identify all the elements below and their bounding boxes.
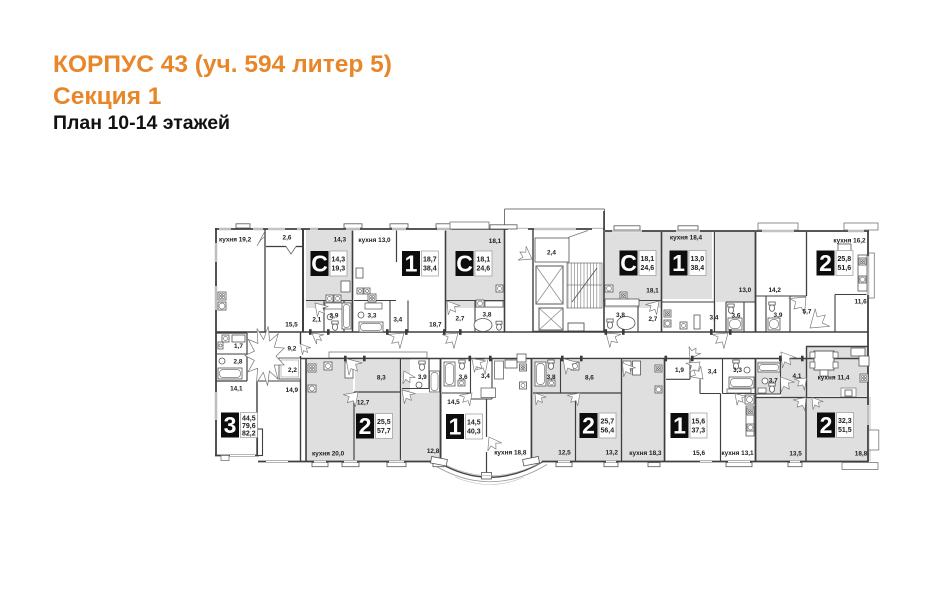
svg-text:1: 1 bbox=[672, 250, 685, 276]
svg-text:3,8: 3,8 bbox=[547, 374, 556, 381]
svg-text:Секция 1: Секция 1 bbox=[53, 83, 161, 110]
svg-text:13,0: 13,0 bbox=[739, 287, 752, 294]
svg-text:38,4: 38,4 bbox=[423, 266, 437, 273]
svg-text:С: С bbox=[456, 251, 473, 277]
svg-text:кухня 13,0: кухня 13,0 bbox=[358, 237, 391, 244]
svg-text:24,6: 24,6 bbox=[641, 265, 655, 272]
svg-text:5,7: 5,7 bbox=[803, 309, 812, 316]
svg-text:14,5: 14,5 bbox=[467, 420, 481, 427]
svg-text:18,8: 18,8 bbox=[855, 451, 868, 458]
svg-text:25,5: 25,5 bbox=[377, 419, 391, 426]
svg-text:15,5: 15,5 bbox=[285, 322, 298, 329]
svg-text:кухня 18,8: кухня 18,8 bbox=[494, 449, 527, 456]
svg-text:1: 1 bbox=[449, 414, 462, 440]
svg-text:8,6: 8,6 bbox=[585, 374, 594, 381]
svg-text:3,9: 3,9 bbox=[774, 312, 783, 319]
svg-text:2,6: 2,6 bbox=[283, 235, 292, 242]
svg-text:51,6: 51,6 bbox=[838, 265, 852, 272]
svg-text:3,7: 3,7 bbox=[769, 377, 778, 384]
svg-text:57,7: 57,7 bbox=[377, 428, 391, 435]
svg-text:18,7: 18,7 bbox=[423, 257, 437, 264]
svg-text:56,4: 56,4 bbox=[601, 428, 615, 435]
svg-text:12,8: 12,8 bbox=[427, 448, 440, 455]
svg-text:3: 3 bbox=[224, 412, 237, 438]
svg-text:2,7: 2,7 bbox=[648, 316, 657, 323]
svg-text:3,6: 3,6 bbox=[732, 313, 741, 320]
svg-text:С: С bbox=[620, 250, 637, 276]
svg-text:2,2: 2,2 bbox=[288, 367, 297, 374]
svg-text:14,1: 14,1 bbox=[230, 386, 243, 393]
svg-text:3,4: 3,4 bbox=[393, 317, 402, 324]
svg-text:4,1: 4,1 bbox=[793, 373, 802, 380]
svg-text:14,3: 14,3 bbox=[334, 237, 347, 244]
svg-text:2,9: 2,9 bbox=[330, 313, 339, 320]
svg-text:1: 1 bbox=[673, 413, 686, 439]
svg-text:13,0: 13,0 bbox=[691, 256, 705, 263]
svg-text:38,4: 38,4 bbox=[691, 265, 705, 272]
svg-text:кухня 18,4: кухня 18,4 bbox=[670, 235, 703, 242]
svg-text:19,3: 19,3 bbox=[332, 266, 346, 273]
svg-text:1,7: 1,7 bbox=[234, 343, 243, 350]
svg-text:18,1: 18,1 bbox=[646, 288, 659, 295]
svg-text:13,5: 13,5 bbox=[789, 451, 802, 458]
svg-text:82,2: 82,2 bbox=[242, 431, 256, 438]
svg-text:12,5: 12,5 bbox=[558, 449, 571, 456]
svg-text:15,6: 15,6 bbox=[692, 419, 706, 426]
svg-text:79,6: 79,6 bbox=[242, 423, 256, 430]
svg-text:2: 2 bbox=[820, 412, 833, 438]
svg-text:9,2: 9,2 bbox=[287, 346, 296, 353]
svg-text:32,3: 32,3 bbox=[838, 418, 852, 425]
svg-text:2,4: 2,4 bbox=[547, 250, 556, 257]
svg-text:8,3: 8,3 bbox=[377, 374, 386, 381]
svg-text:кухня 19,2: кухня 19,2 bbox=[219, 237, 252, 244]
svg-text:11,6: 11,6 bbox=[855, 298, 868, 305]
svg-text:12,7: 12,7 bbox=[357, 399, 370, 406]
svg-text:13,2: 13,2 bbox=[605, 449, 618, 456]
svg-text:КОРПУС 43 (уч. 594 литер 5): КОРПУС 43 (уч. 594 литер 5) bbox=[53, 51, 392, 78]
svg-text:18,1: 18,1 bbox=[477, 257, 491, 264]
svg-text:14,5: 14,5 bbox=[447, 399, 460, 406]
svg-text:3,8: 3,8 bbox=[616, 312, 625, 319]
svg-text:2: 2 bbox=[819, 250, 832, 276]
svg-text:3,4: 3,4 bbox=[710, 314, 719, 321]
svg-text:25,7: 25,7 bbox=[601, 419, 615, 426]
svg-text:40,3: 40,3 bbox=[467, 429, 481, 436]
svg-text:кухня 13,1: кухня 13,1 bbox=[721, 450, 754, 457]
svg-text:2: 2 bbox=[359, 413, 372, 439]
svg-text:кухня 16,2: кухня 16,2 bbox=[833, 238, 866, 245]
svg-text:15,6: 15,6 bbox=[693, 450, 706, 457]
svg-text:18,1: 18,1 bbox=[489, 238, 502, 245]
svg-text:3,3: 3,3 bbox=[733, 367, 742, 374]
svg-text:44,5: 44,5 bbox=[242, 416, 256, 423]
svg-text:кухня 18,3: кухня 18,3 bbox=[629, 450, 662, 457]
svg-text:кухня 20,0: кухня 20,0 bbox=[312, 451, 345, 458]
svg-text:3,6: 3,6 bbox=[459, 374, 468, 381]
svg-text:С: С bbox=[311, 251, 328, 277]
svg-text:2,8: 2,8 bbox=[234, 359, 243, 366]
svg-text:14,2: 14,2 bbox=[768, 287, 781, 294]
svg-text:3,8: 3,8 bbox=[483, 312, 492, 319]
svg-text:2,1: 2,1 bbox=[312, 317, 321, 324]
svg-text:14,3: 14,3 bbox=[332, 257, 346, 264]
svg-text:24,6: 24,6 bbox=[477, 266, 491, 273]
svg-text:18,7: 18,7 bbox=[429, 322, 442, 329]
svg-text:3,3: 3,3 bbox=[368, 313, 377, 320]
svg-text:2: 2 bbox=[582, 413, 595, 439]
svg-text:51,5: 51,5 bbox=[838, 427, 852, 434]
svg-text:2,7: 2,7 bbox=[456, 316, 465, 323]
svg-text:3,4: 3,4 bbox=[481, 373, 490, 380]
svg-text:3,4: 3,4 bbox=[708, 368, 717, 375]
svg-text:37,3: 37,3 bbox=[692, 428, 706, 435]
svg-text:25,8: 25,8 bbox=[838, 256, 852, 263]
svg-text:кухня 11,4: кухня 11,4 bbox=[818, 374, 850, 381]
svg-text:3,9: 3,9 bbox=[418, 374, 427, 381]
svg-text:18,1: 18,1 bbox=[641, 256, 655, 263]
svg-text:План 10-14 этажей: План 10-14 этажей bbox=[53, 112, 230, 134]
svg-text:1: 1 bbox=[405, 251, 418, 277]
svg-text:1,9: 1,9 bbox=[675, 367, 684, 374]
svg-text:14,9: 14,9 bbox=[286, 387, 299, 394]
